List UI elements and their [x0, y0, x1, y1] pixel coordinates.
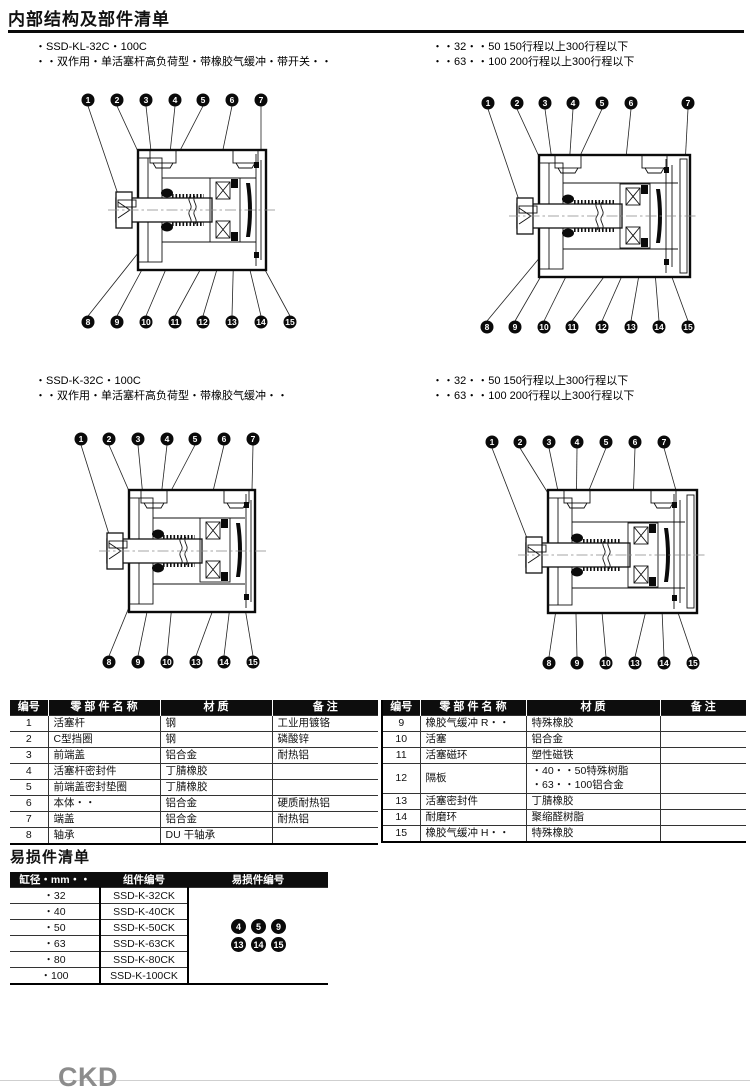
part-material: 铝合金: [526, 732, 660, 748]
svg-text:2: 2: [107, 434, 112, 444]
svg-text:15: 15: [683, 322, 693, 332]
diagram-ssd-k-long-stroke: 1 2 3 4 5 6 7 8 9 10 13 14 15: [470, 425, 710, 675]
bore-cell: ・50: [10, 920, 100, 936]
svg-text:10: 10: [162, 657, 172, 667]
part-note: [272, 780, 378, 796]
wear-badge: 14: [251, 937, 266, 952]
svg-text:12: 12: [597, 322, 607, 332]
part-material: 特殊橡胶: [526, 716, 660, 732]
wear-badge: 9: [271, 919, 286, 934]
kit-cell: SSD-K-32CK: [100, 888, 188, 904]
part-name: 前端盖: [48, 748, 160, 764]
svg-text:3: 3: [547, 437, 552, 447]
part-material: 铝合金: [160, 796, 272, 812]
bore-header: 缸径・mm・・: [10, 872, 100, 888]
table-row: 7端盖铝合金耐热铝: [10, 812, 378, 828]
part-no: 1: [10, 716, 48, 732]
svg-text:6: 6: [222, 434, 227, 444]
part-material: 钢: [160, 716, 272, 732]
table-row: 2C型挡圈钢磷酸锌: [10, 732, 378, 748]
table-row: 1活塞杆钢工业用镀铬: [10, 716, 378, 732]
part-note: 工业用镀铬: [272, 716, 378, 732]
svg-text:15: 15: [688, 658, 698, 668]
svg-text:10: 10: [141, 317, 151, 327]
part-material: 丁腈橡胶: [160, 764, 272, 780]
table-row: 5前端盖密封垫圈丁腈橡胶: [10, 780, 378, 796]
kit-header: 组件编号: [100, 872, 188, 888]
parts-table-left: 编号 零 部 件 名 称 材 质 备 注 1活塞杆钢工业用镀铬 2C型挡圈钢磷酸…: [10, 700, 378, 845]
svg-text:10: 10: [601, 658, 611, 668]
part-material: 丁腈橡胶: [526, 794, 660, 810]
svg-text:4: 4: [575, 437, 580, 447]
svg-text:13: 13: [626, 322, 636, 332]
svg-text:8: 8: [547, 658, 552, 668]
col-material-header: 材 质: [160, 700, 272, 716]
material-line-1: ・40・・50特殊树脂: [532, 765, 660, 778]
svg-text:6: 6: [633, 437, 638, 447]
part-note: 耐热铝: [272, 812, 378, 828]
diagram-ssd-kl-standard: 1 2 3 4 5 6 7 8 9 10 11 12 13 14 15: [70, 88, 300, 333]
wear-badges: 4 5 9 13 14 15: [189, 919, 328, 952]
cylinder-section: [518, 490, 706, 613]
cylinder-section: [108, 150, 278, 270]
svg-text:11: 11: [171, 317, 180, 327]
part-no: 9: [382, 716, 420, 732]
col-material-header: 材 质: [526, 700, 660, 716]
section2-desc: ・・双作用・单活塞杆高负荷型・带橡胶气缓冲・・: [35, 387, 288, 403]
part-no: 15: [382, 826, 420, 843]
page-title: 内部结构及部件清单: [8, 5, 170, 30]
svg-text:9: 9: [115, 317, 120, 327]
svg-text:7: 7: [251, 434, 256, 444]
header-row: 缸径・mm・・ 组件编号 易损件编号: [10, 872, 328, 888]
ckd-logo: CKD: [58, 1062, 118, 1092]
svg-text:14: 14: [659, 658, 669, 668]
wear-parts-title: 易损件清单: [10, 846, 90, 867]
section2-stroke-note-2: ・・63・・100 200行程以上300行程以下: [432, 387, 634, 403]
col-no-header: 编号: [382, 700, 420, 716]
svg-text:5: 5: [600, 98, 605, 108]
svg-text:1: 1: [79, 434, 84, 444]
col-name-header: 零 部 件 名 称: [420, 700, 526, 716]
svg-text:3: 3: [543, 98, 548, 108]
svg-text:15: 15: [285, 317, 295, 327]
kit-cell: SSD-K-50CK: [100, 920, 188, 936]
table-row: 11活塞磁环塑性磁铁: [382, 748, 746, 764]
table-row: 15橡胶气缓冲 H・・特殊橡胶: [382, 826, 746, 843]
table-row: 12隔板・40・・50特殊树脂・63・・100铝合金: [382, 764, 746, 794]
part-name: 橡胶气缓冲 H・・: [420, 826, 526, 843]
part-name: 活塞密封件: [420, 794, 526, 810]
table-row: 8轴承DU 干轴承: [10, 828, 378, 845]
col-note-header: 备 注: [272, 700, 378, 716]
col-no-header: 编号: [10, 700, 48, 716]
part-note: [272, 764, 378, 780]
svg-text:12: 12: [198, 317, 208, 327]
part-material: 铝合金: [160, 748, 272, 764]
part-name: 端盖: [48, 812, 160, 828]
cylinder-section: [99, 490, 267, 612]
part-material: 丁腈橡胶: [160, 780, 272, 796]
wear-no-header: 易损件编号: [188, 872, 328, 888]
part-note: [660, 826, 746, 843]
table-row: 10活塞铝合金: [382, 732, 746, 748]
svg-text:15: 15: [248, 657, 258, 667]
col-note-header: 备 注: [660, 700, 746, 716]
wear-badge: 4: [231, 919, 246, 934]
table-row: 9橡胶气缓冲 R・・特殊橡胶: [382, 716, 746, 732]
diagram-ssd-kl-long-stroke: 1 2 3 4 5 6 7 8 9 10 11 12 13 14 15: [470, 88, 705, 338]
part-no: 13: [382, 794, 420, 810]
part-name: 耐磨环: [420, 810, 526, 826]
part-name: 活塞磁环: [420, 748, 526, 764]
svg-text:9: 9: [575, 658, 580, 668]
part-name: 隔板: [420, 764, 526, 794]
part-no: 5: [10, 780, 48, 796]
svg-text:1: 1: [486, 98, 491, 108]
part-name: 橡胶气缓冲 R・・: [420, 716, 526, 732]
section1-model: ・SSD-KL-32C・100C: [35, 38, 147, 54]
part-name: 活塞: [420, 732, 526, 748]
part-material: DU 干轴承: [160, 828, 272, 845]
table-row: 13活塞密封件丁腈橡胶: [382, 794, 746, 810]
svg-text:1: 1: [490, 437, 495, 447]
kit-cell: SSD-K-40CK: [100, 904, 188, 920]
part-note: 磷酸锌: [272, 732, 378, 748]
bore-cell: ・40: [10, 904, 100, 920]
table-row: 14耐磨环聚缩醛树脂: [382, 810, 746, 826]
svg-text:4: 4: [165, 434, 170, 444]
header-row: 编号 零 部 件 名 称 材 质 备 注: [10, 700, 378, 716]
table-row: ・32 SSD-K-32CK 4 5 9 13 14 15: [10, 888, 328, 904]
svg-text:7: 7: [662, 437, 667, 447]
svg-text:2: 2: [515, 98, 520, 108]
part-material: 钢: [160, 732, 272, 748]
table-row: 4活塞杆密封件丁腈橡胶: [10, 764, 378, 780]
section2-stroke-note-1: ・・32・・50 150行程以上300行程以下: [432, 372, 628, 388]
svg-text:13: 13: [191, 657, 201, 667]
part-material: 铝合金: [160, 812, 272, 828]
bore-cell: ・80: [10, 952, 100, 968]
part-note: [660, 732, 746, 748]
svg-text:1: 1: [86, 95, 91, 105]
svg-text:7: 7: [686, 98, 691, 108]
svg-text:8: 8: [86, 317, 91, 327]
wear-badge: 5: [251, 919, 266, 934]
col-name-header: 零 部 件 名 称: [48, 700, 160, 716]
svg-text:14: 14: [654, 322, 664, 332]
kit-cell: SSD-K-80CK: [100, 952, 188, 968]
part-name: 轴承: [48, 828, 160, 845]
svg-text:11: 11: [568, 322, 577, 332]
part-no: 3: [10, 748, 48, 764]
part-no: 11: [382, 748, 420, 764]
part-no: 14: [382, 810, 420, 826]
svg-text:14: 14: [256, 317, 266, 327]
part-no: 12: [382, 764, 420, 794]
svg-text:8: 8: [107, 657, 112, 667]
wear-part-numbers-cell: 4 5 9 13 14 15: [188, 888, 328, 985]
part-name: C型挡圈: [48, 732, 160, 748]
part-name: 本体・・: [48, 796, 160, 812]
svg-text:14: 14: [219, 657, 229, 667]
svg-text:4: 4: [173, 95, 178, 105]
svg-text:4: 4: [571, 98, 576, 108]
part-no: 8: [10, 828, 48, 845]
bore-cell: ・100: [10, 968, 100, 985]
part-name: 前端盖密封垫圈: [48, 780, 160, 796]
material-line-2: ・63・・100铝合金: [532, 779, 660, 792]
catalog-page: 内部结构及部件清单 ・SSD-KL-32C・100C ・・双作用・单活塞杆高负荷…: [0, 0, 750, 1092]
part-note: [660, 794, 746, 810]
table-row: 3前端盖铝合金耐热铝: [10, 748, 378, 764]
svg-text:5: 5: [201, 95, 206, 105]
svg-text:9: 9: [136, 657, 141, 667]
part-no: 10: [382, 732, 420, 748]
svg-text:5: 5: [604, 437, 609, 447]
svg-text:13: 13: [630, 658, 640, 668]
part-note: 硬质耐热铝: [272, 796, 378, 812]
cylinder-section: [509, 155, 698, 277]
table-row: 6本体・・铝合金硬质耐热铝: [10, 796, 378, 812]
svg-text:3: 3: [136, 434, 141, 444]
section1-desc: ・・双作用・单活塞杆高负荷型・带橡胶气缓冲・带开关・・: [35, 53, 332, 69]
svg-text:10: 10: [539, 322, 549, 332]
bore-cell: ・32: [10, 888, 100, 904]
svg-text:7: 7: [259, 95, 264, 105]
kit-cell: SSD-K-100CK: [100, 968, 188, 985]
diagram-ssd-k-standard: 1 2 3 4 5 6 7 8 9 10 13 14 15: [62, 425, 297, 670]
part-material: 聚缩醛树脂: [526, 810, 660, 826]
header-row: 编号 零 部 件 名 称 材 质 备 注: [382, 700, 746, 716]
svg-text:13: 13: [227, 317, 237, 327]
kit-cell: SSD-K-63CK: [100, 936, 188, 952]
wear-badge: 15: [271, 937, 286, 952]
bore-cell: ・63: [10, 936, 100, 952]
part-material: 特殊橡胶: [526, 826, 660, 843]
part-note: [272, 828, 378, 845]
part-name: 活塞杆密封件: [48, 764, 160, 780]
part-note: [660, 716, 746, 732]
svg-text:8: 8: [485, 322, 490, 332]
svg-text:6: 6: [230, 95, 235, 105]
section1-stroke-note-1: ・・32・・50 150行程以上300行程以下: [432, 38, 628, 54]
part-material: 塑性磁铁: [526, 748, 660, 764]
svg-text:3: 3: [144, 95, 149, 105]
section1-stroke-note-2: ・・63・・100 200行程以上300行程以下: [432, 53, 634, 69]
part-no: 2: [10, 732, 48, 748]
title-rule: [8, 30, 744, 33]
part-material: ・40・・50特殊树脂・63・・100铝合金: [526, 764, 660, 794]
part-no: 6: [10, 796, 48, 812]
part-note: [660, 764, 746, 794]
part-no: 4: [10, 764, 48, 780]
svg-text:5: 5: [193, 434, 198, 444]
wear-badge: 13: [231, 937, 246, 952]
part-note: [660, 810, 746, 826]
parts-table-right: 编号 零 部 件 名 称 材 质 备 注 9橡胶气缓冲 R・・特殊橡胶 10活塞…: [381, 700, 746, 843]
part-note: [660, 748, 746, 764]
part-no: 7: [10, 812, 48, 828]
svg-text:6: 6: [629, 98, 634, 108]
svg-text:2: 2: [518, 437, 523, 447]
svg-text:9: 9: [513, 322, 518, 332]
section2-model: ・SSD-K-32C・100C: [35, 372, 141, 388]
svg-text:2: 2: [115, 95, 120, 105]
part-name: 活塞杆: [48, 716, 160, 732]
wear-parts-table: 缸径・mm・・ 组件编号 易损件编号 ・32 SSD-K-32CK 4 5 9: [10, 872, 328, 985]
part-note: 耐热铝: [272, 748, 378, 764]
